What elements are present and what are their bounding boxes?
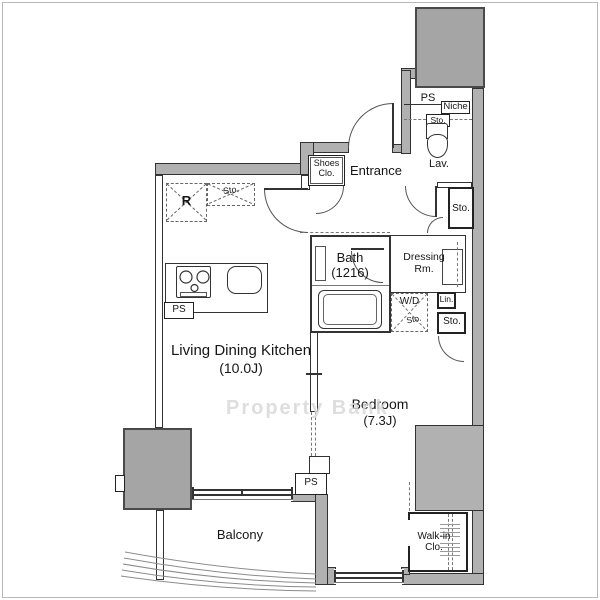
window-cap: [402, 570, 404, 582]
image-frame: [2, 2, 598, 598]
shoes-closet-label-line2: Clo.: [309, 168, 344, 178]
pillar-notch: [115, 475, 125, 492]
ps-label-top: PS: [416, 92, 440, 104]
window-sill: [334, 582, 404, 583]
ldk-size-label: (10.0J): [141, 361, 341, 377]
kitchen-sink: [227, 266, 262, 294]
refrigerator-label: R: [166, 194, 207, 209]
west-outer-wall: [155, 175, 163, 428]
ldk-label: Living Dining Kitchen: [141, 343, 341, 360]
balcony-east-wall-horizontal: [291, 494, 317, 502]
storage-overhead-label: Sto.: [427, 116, 449, 126]
lavatory-label: Lav.: [426, 158, 452, 170]
walk-in-closet-label: Walk-in Clo.: [408, 531, 460, 553]
dressing-room-label: Dressing Rm.: [390, 252, 458, 276]
bathtub-inner: [323, 294, 377, 325]
window-sill: [192, 499, 293, 500]
front-door-leaf: [392, 103, 394, 148]
entrance-label: Entrance: [348, 164, 404, 179]
south-east-outer-wall: [402, 573, 484, 585]
washer-dryer-label: W/D: [391, 296, 428, 307]
storage-dash-west: [404, 119, 426, 120]
floor-plan: PS Niche Sto. Lav. Entrance Shoes Clo. S…: [0, 0, 600, 600]
bedroom-ps-label: PS: [295, 477, 327, 488]
window-cap: [291, 487, 293, 499]
lavatory-door-leaf: [435, 186, 437, 217]
dressing-room-label-line2: Rm.: [390, 264, 458, 276]
bath-size-label: (1216): [310, 266, 390, 281]
walk-in-closet-label-line1: Walk-in: [408, 531, 460, 542]
storage-dash-east: [450, 119, 472, 120]
watermark: Property Bank: [226, 397, 389, 420]
bath-label: Bath: [310, 251, 390, 266]
window-line: [334, 572, 404, 574]
window-cap: [334, 570, 336, 582]
ldk-door-leaf: [264, 188, 308, 190]
shoes-closet-label-line1: Shoes: [309, 158, 344, 168]
window-line: [334, 577, 404, 579]
window-cap: [192, 487, 194, 499]
shoes-closet-label: Shoes Clo.: [309, 158, 344, 178]
ldk-north-wall: [155, 163, 312, 175]
stove-grill: [180, 292, 207, 297]
kitchen-ps-label: PS: [164, 304, 194, 315]
closet-entry-dotted: [409, 482, 410, 511]
walk-in-closet-label-line2: Clo.: [408, 542, 460, 553]
structural-pillar: [123, 428, 192, 510]
balcony-label: Balcony: [190, 528, 290, 543]
niche-label: Niche: [442, 102, 469, 113]
bath-divider: [312, 285, 389, 286]
window-mullion: [241, 489, 243, 496]
linen-label: Lin.: [437, 295, 456, 305]
hall-boundary-dotted: [300, 232, 390, 233]
dressing-overhead-cabinet: [457, 242, 466, 287]
storage-east-label: Sto.: [438, 316, 466, 327]
ldk-balcony-window: [192, 486, 293, 501]
north-shaft-block: [415, 7, 485, 88]
dressing-room-label-line1: Dressing: [390, 252, 458, 264]
entrance-north-wall: [313, 142, 349, 153]
lavatory-west-wall: [401, 70, 411, 154]
balcony-partition: [156, 510, 164, 580]
bedroom-south-window: [334, 569, 404, 584]
bedroom-corner-void: [415, 425, 484, 511]
hall-storage-label: Sto.: [450, 203, 472, 214]
bedroom-ps-jog-wall: [309, 456, 330, 474]
